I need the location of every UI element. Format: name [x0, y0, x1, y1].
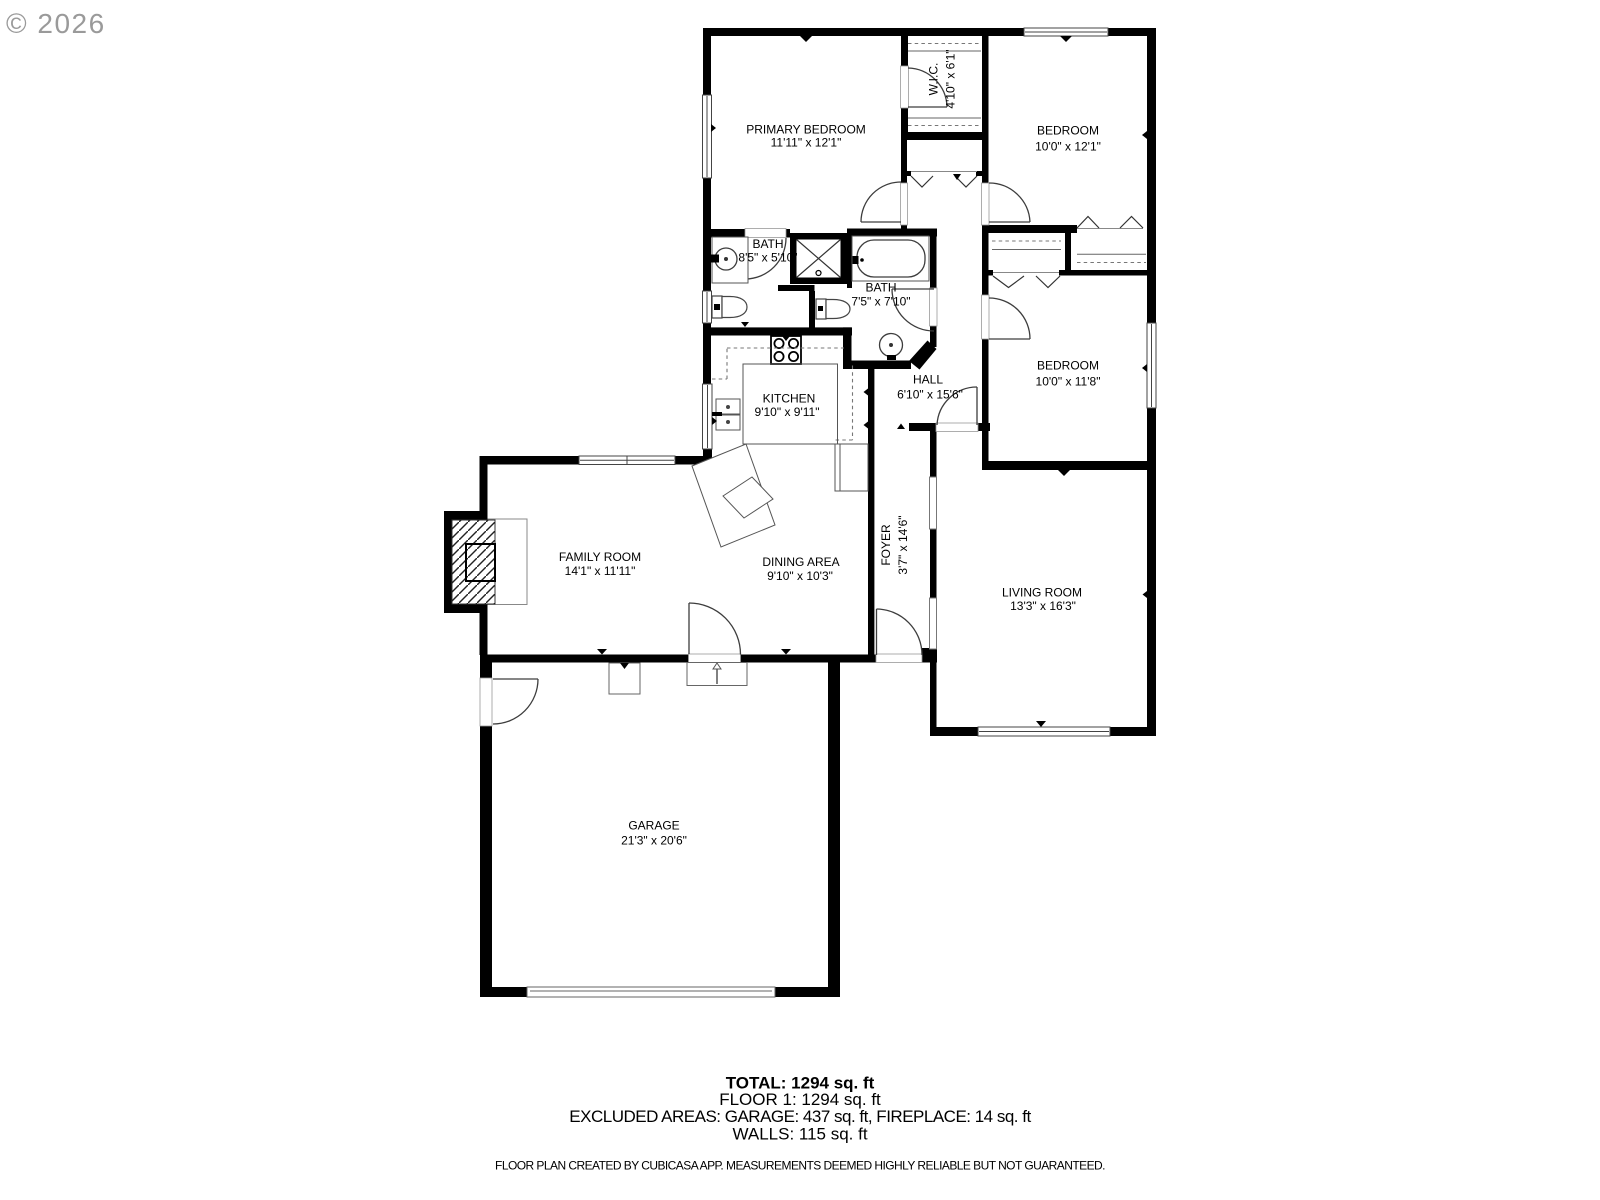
svg-text:11'11" x 12'1": 11'11" x 12'1": [771, 136, 842, 150]
svg-text:4'10" x 6'1": 4'10" x 6'1": [944, 49, 958, 108]
svg-text:14'1" x 11'11": 14'1" x 11'11": [565, 564, 636, 578]
svg-text:WALLS: 115 sq. ft: WALLS: 115 sq. ft: [732, 1125, 867, 1144]
svg-text:9'10" x 9'11": 9'10" x 9'11": [755, 405, 820, 419]
svg-text:LIVING ROOM: LIVING ROOM: [1002, 585, 1082, 599]
svg-text:BATH: BATH: [865, 280, 896, 294]
svg-text:PRIMARY BEDROOM: PRIMARY BEDROOM: [746, 122, 866, 136]
svg-text:21'3" x 20'6": 21'3" x 20'6": [621, 833, 687, 847]
svg-text:13'3" x 16'3": 13'3" x 16'3": [1010, 599, 1076, 613]
svg-text:10'0" x 11'8": 10'0" x 11'8": [1036, 374, 1101, 388]
svg-text:FAMILY ROOM: FAMILY ROOM: [559, 550, 641, 564]
svg-text:7'5" x 7'10": 7'5" x 7'10": [851, 294, 910, 308]
svg-text:8'5" x 5'10": 8'5" x 5'10": [738, 251, 797, 265]
svg-text:HALL: HALL: [913, 372, 943, 386]
svg-text:KITCHEN: KITCHEN: [763, 391, 816, 405]
svg-text:© 2026: © 2026: [6, 8, 106, 39]
svg-text:EXCLUDED AREAS: GARAGE: 437 sq: EXCLUDED AREAS: GARAGE: 437 sq. ft, FIRE…: [569, 1107, 1031, 1126]
svg-text:FLOOR PLAN CREATED BY CUBICASA: FLOOR PLAN CREATED BY CUBICASA APP. MEAS…: [495, 1159, 1105, 1173]
svg-text:FOYER: FOYER: [879, 524, 893, 566]
svg-text:9'10" x 10'3": 9'10" x 10'3": [767, 569, 833, 583]
svg-text:3'7" x 14'6": 3'7" x 14'6": [896, 515, 910, 574]
svg-text:10'0" x 12'1": 10'0" x 12'1": [1035, 139, 1101, 153]
svg-text:DINING AREA: DINING AREA: [762, 555, 839, 569]
svg-text:BEDROOM: BEDROOM: [1037, 123, 1099, 137]
svg-text:BEDROOM: BEDROOM: [1037, 358, 1099, 372]
svg-text:W.I.C.: W.I.C.: [927, 63, 941, 96]
svg-text:6'10" x 15'6": 6'10" x 15'6": [897, 387, 963, 401]
svg-text:BATH: BATH: [752, 237, 783, 251]
svg-text:GARAGE: GARAGE: [628, 818, 679, 832]
